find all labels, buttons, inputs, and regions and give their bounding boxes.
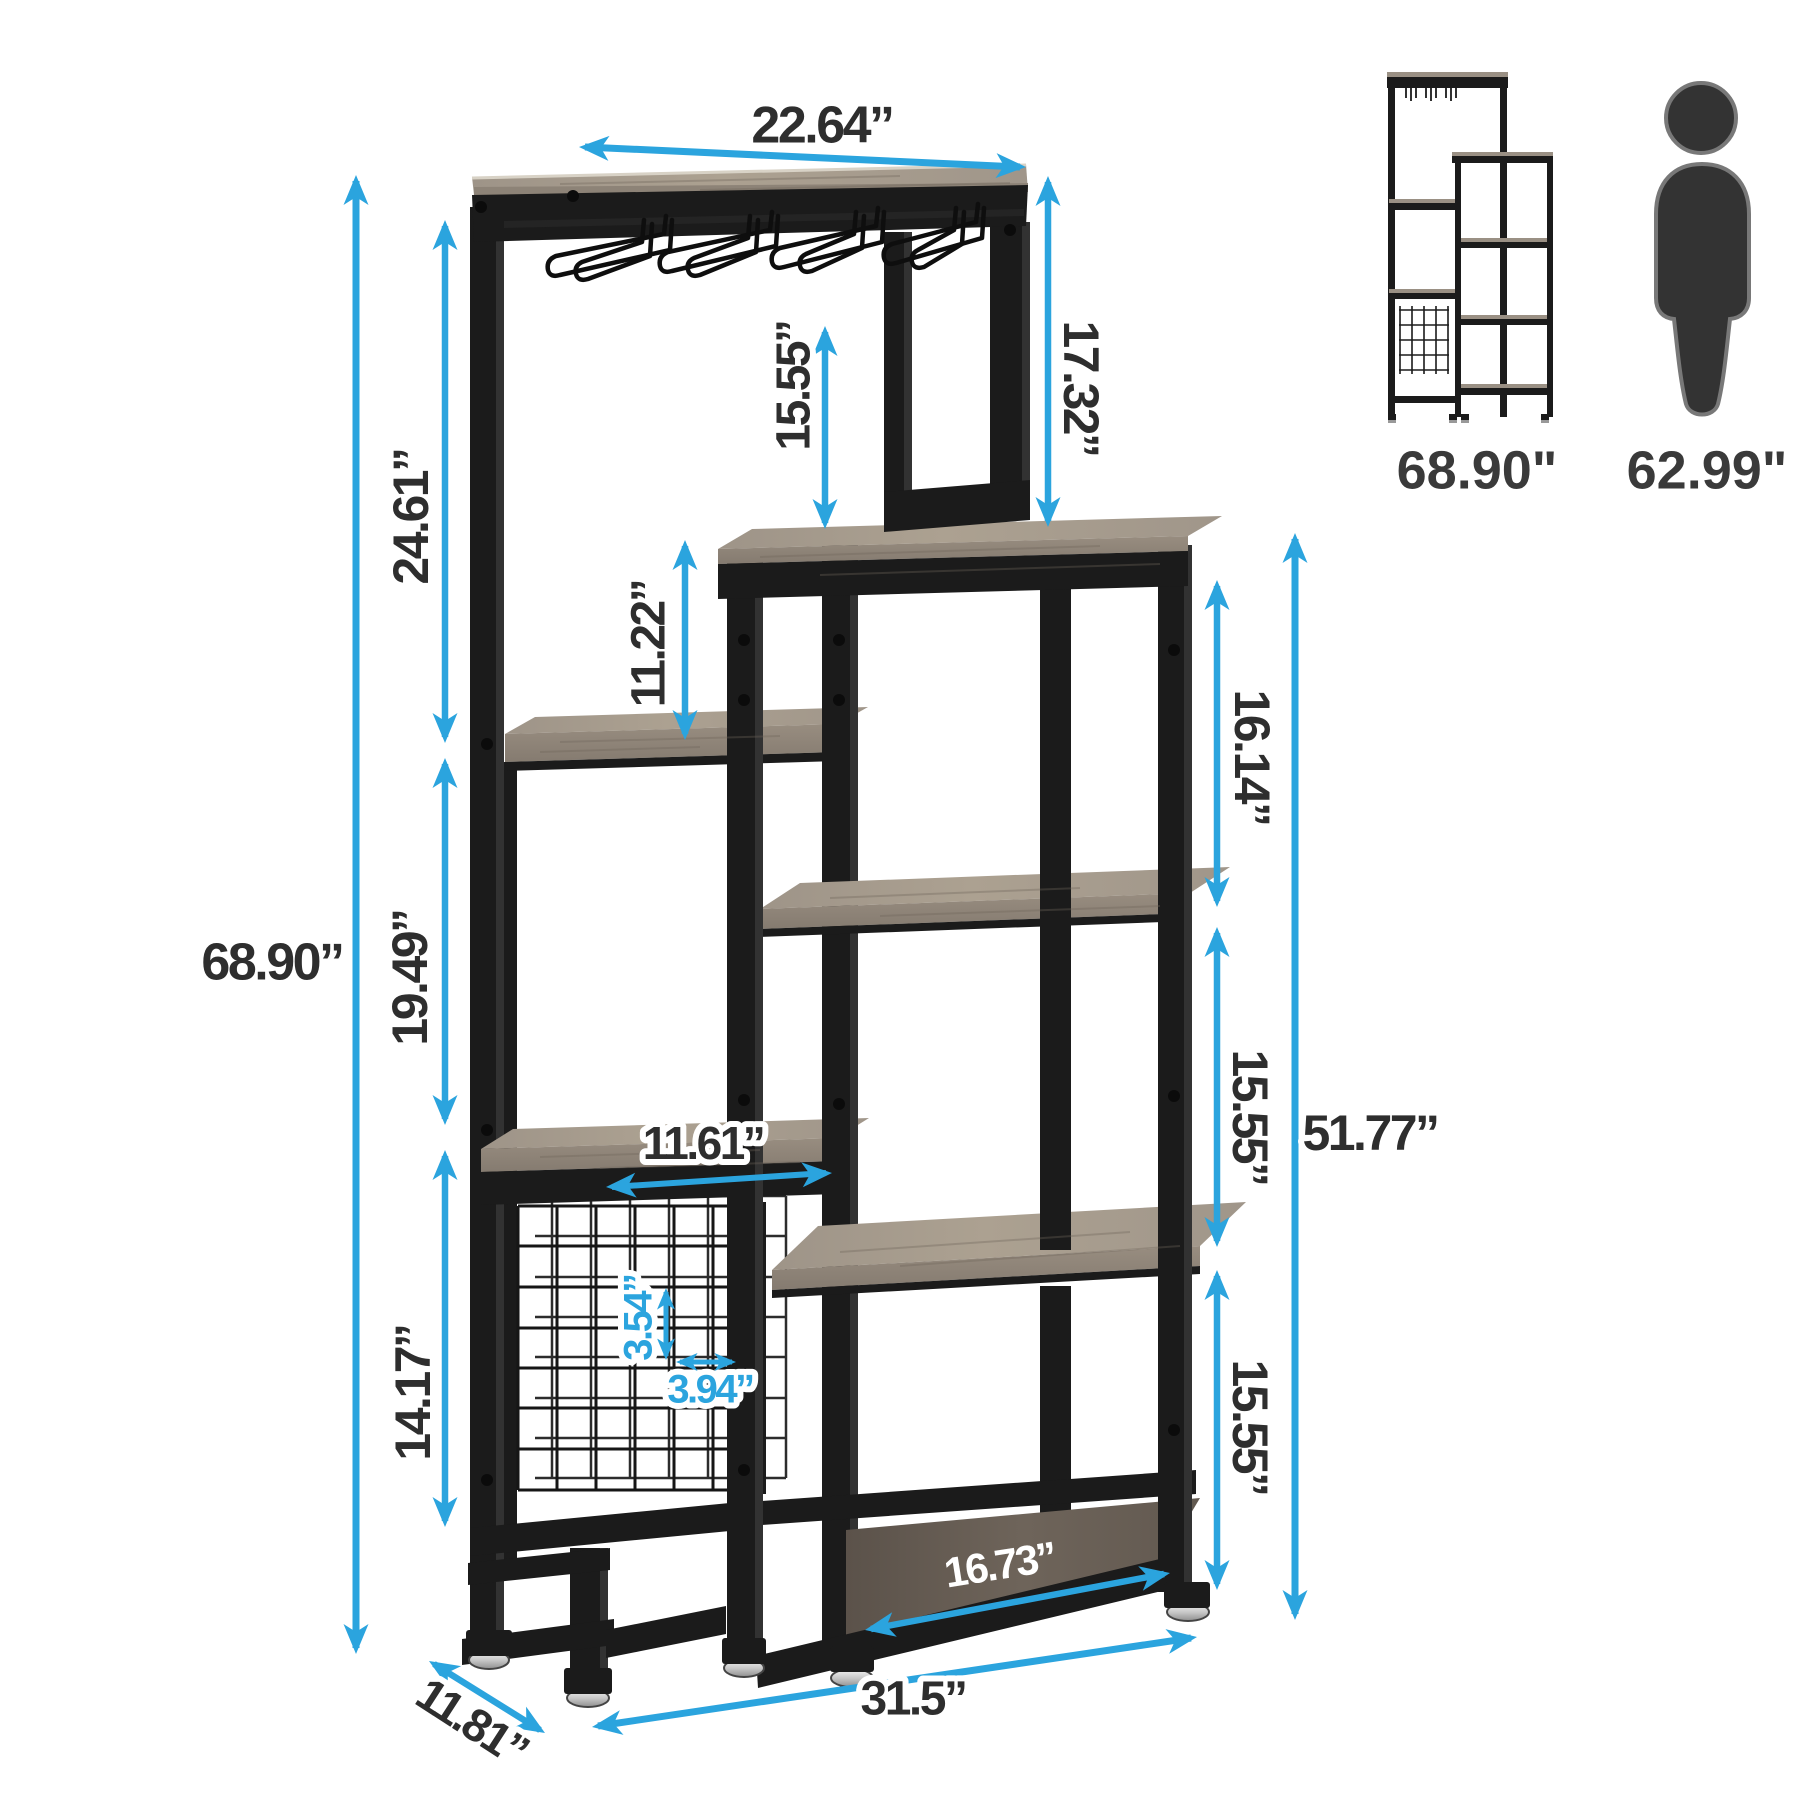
svg-text:62.99": 62.99" [1627,440,1788,500]
svg-text:17.32”: 17.32” [1053,320,1109,455]
svg-text:22.64”: 22.64” [751,97,892,155]
svg-text:16.14”: 16.14” [1224,689,1280,824]
svg-text:24.61”: 24.61” [383,449,439,584]
svg-text:11.22”: 11.22” [623,581,676,707]
svg-text:19.49”: 19.49” [382,910,438,1045]
svg-text:51.77”: 51.77” [1302,1105,1437,1161]
svg-text:31.5”: 31.5” [861,1673,966,1726]
svg-text:3.54”: 3.54” [617,1275,661,1361]
svg-text:68.90”: 68.90” [201,934,342,992]
svg-text:68.90": 68.90" [1397,440,1558,500]
svg-text:15.55”: 15.55” [768,321,821,450]
svg-text:11.81”: 11.81” [407,1667,536,1776]
svg-text:15.55”: 15.55” [1222,1049,1278,1184]
svg-text:14.17”: 14.17” [385,1325,441,1460]
svg-text:15.55”: 15.55” [1222,1359,1278,1494]
svg-text:3.94”: 3.94” [667,1368,753,1412]
svg-text:11.61”: 11.61” [643,1117,764,1169]
